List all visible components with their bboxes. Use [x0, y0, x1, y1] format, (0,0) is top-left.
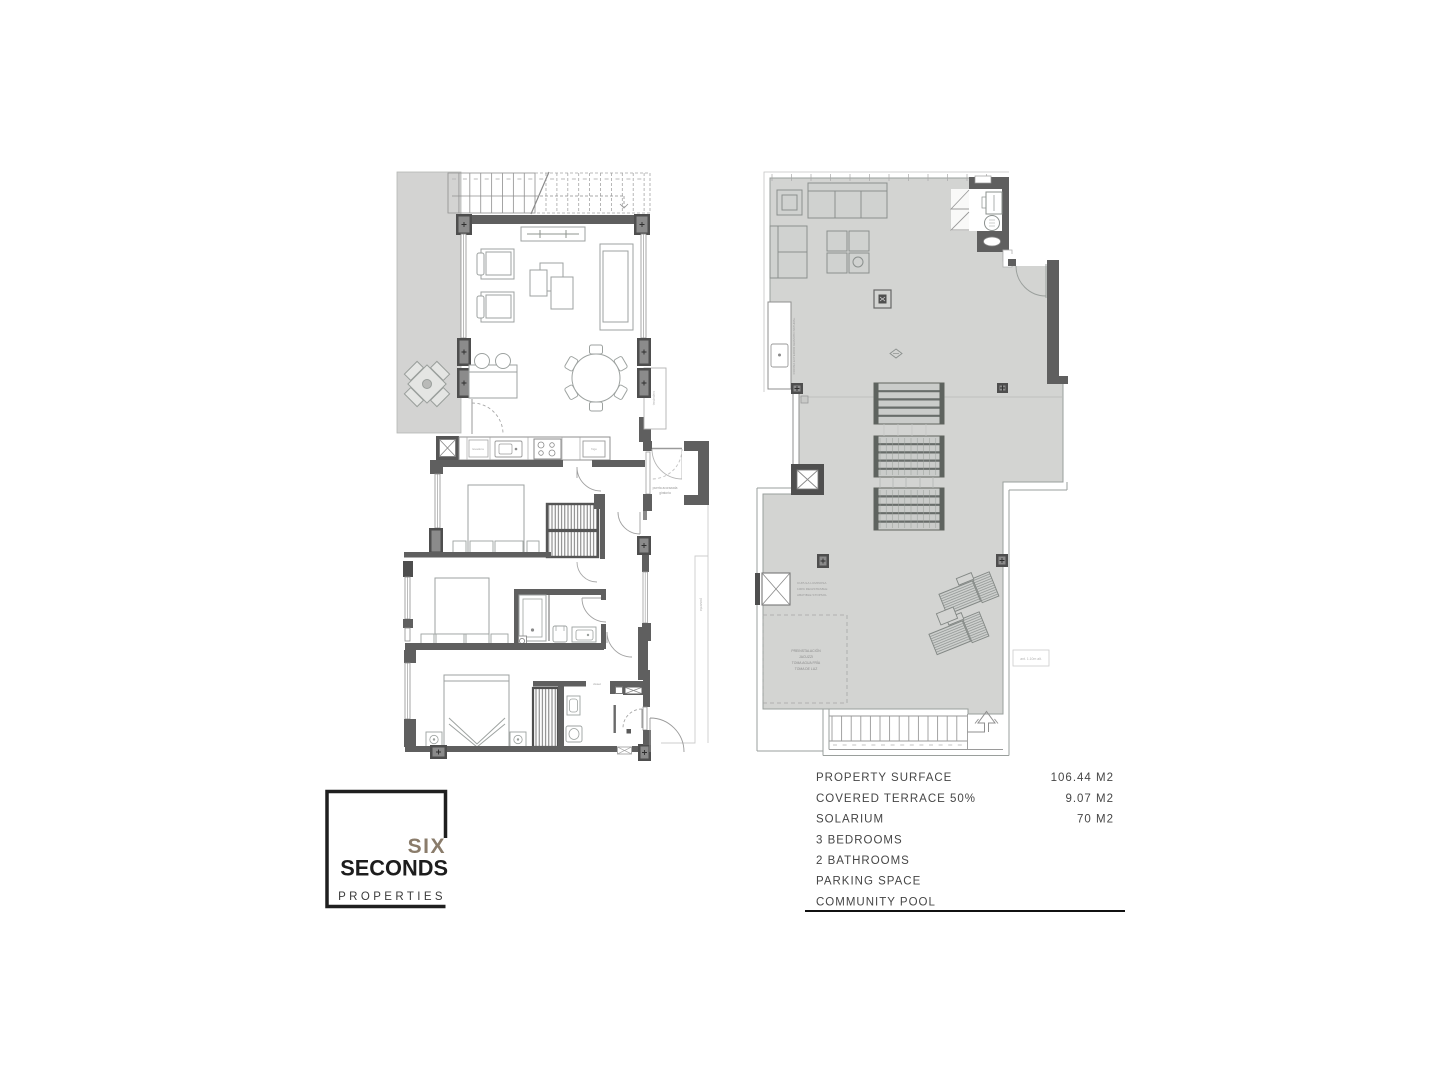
- svg-text:70 M2: 70 M2: [1077, 814, 1114, 826]
- svg-text:frigo: frigo: [591, 447, 597, 451]
- svg-text:SOLARIUM: SOLARIUM: [816, 814, 884, 826]
- svg-text:ant. 1.10m alt.: ant. 1.10m alt.: [1020, 657, 1042, 661]
- svg-text:TOMA AGUA FRÍA: TOMA AGUA FRÍA: [792, 661, 821, 665]
- svg-text:giratoria: giratoria: [659, 491, 671, 495]
- svg-text:9.07 M2: 9.07 M2: [1065, 793, 1114, 805]
- svg-text:JACUZZI: JACUZZI: [799, 655, 813, 659]
- svg-text:CUPULA LUMINOSA: CUPULA LUMINOSA: [797, 581, 827, 585]
- svg-text:COCINA EXTERIOR GRANITO NATURA: COCINA EXTERIOR GRANITO NATURAL: [792, 317, 796, 374]
- svg-text:106.44 M2: 106.44 M2: [1051, 772, 1114, 784]
- svg-text:2 BATHROOMS: 2 BATHROOMS: [816, 855, 910, 867]
- svg-text:lavadora: lavadora: [472, 447, 484, 451]
- svg-text:puerta acorazada: puerta acorazada: [653, 486, 678, 490]
- svg-text:PROPERTIES: PROPERTIES: [338, 891, 446, 903]
- svg-text:3 BEDROOMS: 3 BEDROOMS: [816, 835, 903, 847]
- svg-text:PARKING SPACE: PARKING SPACE: [816, 876, 921, 888]
- svg-text:100% REGISTRABLE: 100% REGISTRABLE: [797, 587, 827, 591]
- svg-text:PREINSTALACIÓN: PREINSTALACIÓN: [791, 648, 821, 653]
- svg-text:closet: closet: [593, 682, 601, 686]
- svg-text:ABATIBLE STOPSOL: ABATIBLE STOPSOL: [797, 593, 827, 597]
- svg-text:TOMA DE LUZ: TOMA DE LUZ: [795, 667, 818, 671]
- svg-text:pasarela: pasarela: [699, 598, 703, 611]
- svg-text:PROPERTY SURFACE: PROPERTY SURFACE: [816, 772, 952, 784]
- svg-text:COMMUNITY POOL: COMMUNITY POOL: [816, 897, 936, 909]
- svg-text:SECONDS: SECONDS: [340, 856, 448, 881]
- svg-text:tendedero: tendedero: [652, 391, 656, 406]
- svg-text:COVERED TERRACE 50%: COVERED TERRACE 50%: [816, 793, 976, 805]
